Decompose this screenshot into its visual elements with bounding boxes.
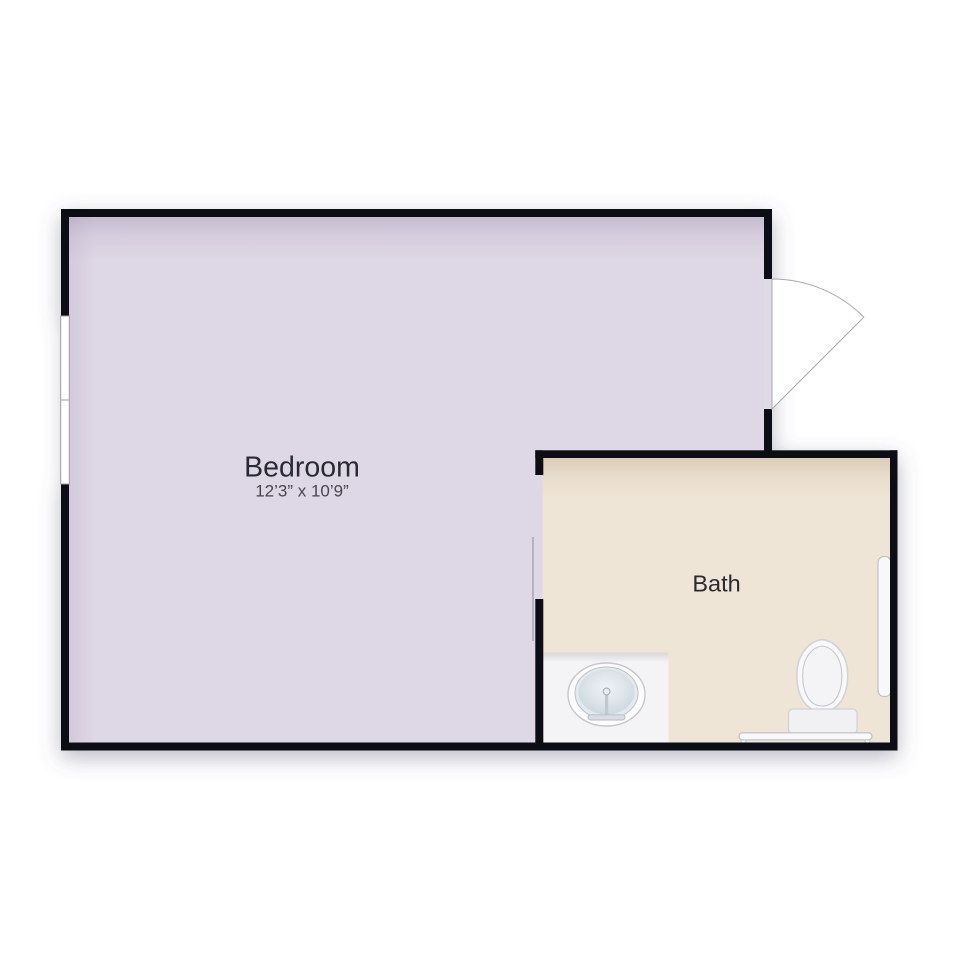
svg-text:Bath: Bath bbox=[692, 571, 740, 597]
svg-text:Bedroom: Bedroom bbox=[244, 452, 360, 484]
svg-text:12’3” x 10’9”: 12’3” x 10’9” bbox=[255, 482, 349, 501]
